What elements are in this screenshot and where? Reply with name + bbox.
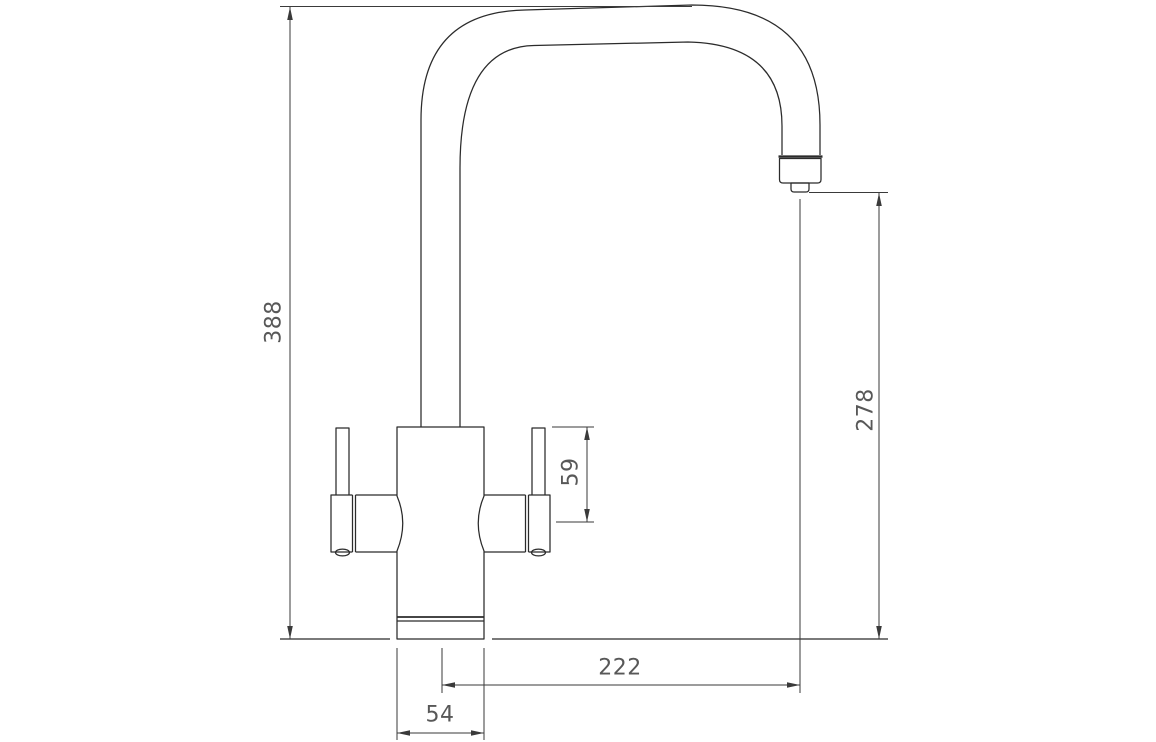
dim-spout-clearance-arrow-down [876, 626, 882, 639]
dim-base-width-label: 54 [426, 703, 455, 728]
dim-spout-reach-label: 222 [598, 656, 642, 681]
dim-spout-clearance-arrow-up [876, 193, 882, 206]
left-handle-lever [336, 428, 349, 495]
base-skirt [397, 617, 484, 639]
dim-overall-height-label: 388 [262, 300, 287, 344]
dim-overall-height-arrow-down [287, 626, 293, 639]
right-handle-lever [532, 428, 545, 495]
dim-handle-height-label: 59 [559, 458, 584, 487]
tap-body-outline [397, 427, 484, 617]
aerator-body [780, 159, 822, 184]
dim-spout-reach-arrow-left [442, 682, 455, 688]
faucet-outline [280, 5, 888, 639]
left-handle-cap [331, 495, 353, 552]
dimension-annotations: 388 278 59 222 [262, 7, 889, 741]
dim-handle-height-arrow-up [584, 427, 590, 440]
dim-handle-height-arrow-down [584, 509, 590, 522]
dim-base-width-arrow-right [471, 730, 484, 736]
dim-spout-reach-arrow-right [787, 682, 800, 688]
technical-drawing-page: 388 278 59 222 [0, 0, 1156, 742]
dim-base-width-arrow-left [397, 730, 410, 736]
spout-inner-contour [460, 42, 782, 427]
spout-outer-contour [421, 5, 820, 427]
right-handle-cap [529, 495, 551, 552]
dim-overall-height-arrow-up [287, 7, 293, 20]
dim-spout-clearance-label: 278 [854, 388, 879, 432]
technical-drawing-canvas: 388 278 59 222 [0, 0, 1156, 742]
aerator-nozzle [791, 183, 809, 192]
